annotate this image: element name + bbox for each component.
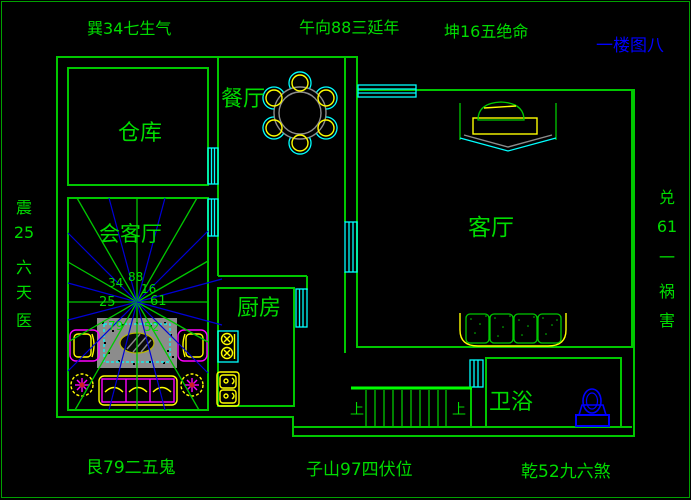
compass-right-char: 61: [657, 217, 677, 236]
stove-icon: [218, 331, 238, 362]
compass-left-char: 天: [16, 283, 32, 302]
fan-number: 79: [108, 319, 123, 333]
compass-left-column: 震 25 六 天 医: [14, 198, 34, 330]
compass-top-right: 坤16五绝命: [444, 22, 528, 41]
window-icon: [470, 360, 483, 387]
compass-bottom-left: 艮79二五鬼: [86, 458, 176, 478]
fan-number: 34: [108, 276, 123, 290]
window-icon: [208, 199, 218, 236]
fan-number: 25: [99, 295, 116, 310]
compass-right-char: 害: [659, 311, 675, 330]
compass-left-char: 六: [16, 258, 32, 277]
stairs: 上 上: [350, 388, 472, 427]
label-kitchen: 厨房: [237, 296, 281, 321]
armchair-icon: [178, 330, 207, 361]
floor-plan-canvas: 上 上 34 88 16: [0, 0, 691, 500]
label-reception: 会客厅: [99, 222, 162, 246]
compass-bottom-right: 乾52九六煞: [521, 462, 611, 482]
label-dining: 餐厅: [221, 87, 265, 112]
window-icon: [296, 289, 307, 327]
sofa-icon: [99, 376, 177, 405]
window-icon: [345, 222, 357, 272]
compass-bottom-center: 子山97四伏位: [306, 460, 413, 480]
compass-right-char: 祸: [659, 282, 675, 301]
compass-top-left: 巽34七生气: [87, 19, 171, 38]
compass-right-column: 兑 61 一 祸 害: [657, 188, 677, 330]
compass-top-center: 午向88三延年: [299, 18, 399, 37]
dining-table-icon: [263, 72, 337, 154]
stair-steps: [366, 390, 446, 427]
window-icon: [208, 148, 218, 184]
label-living: 客厅: [468, 215, 514, 241]
stairs-up-label: 上: [452, 402, 466, 418]
drawing-title: 一楼图八: [596, 36, 664, 56]
fan-number: 61: [150, 294, 167, 309]
fan-number: 52: [144, 320, 159, 334]
compass-right-char: 一: [659, 248, 675, 267]
floor-plan-svg: 上 上 34 88 16: [0, 0, 691, 500]
compass-right-char: 兑: [659, 188, 675, 207]
sofa-icon: [460, 313, 566, 346]
compass-left-char: 震: [16, 198, 32, 217]
sink-icon: [217, 372, 239, 406]
toilet-icon: [576, 389, 609, 426]
tv-icon: [460, 102, 556, 151]
label-bathroom: 卫浴: [489, 390, 533, 415]
stairs-up-label: 上: [350, 402, 364, 418]
compass-left-char: 医: [16, 311, 32, 330]
compass-left-char: 25: [14, 223, 34, 242]
armchair-icon: [70, 330, 99, 361]
label-storage: 仓库: [118, 121, 162, 146]
